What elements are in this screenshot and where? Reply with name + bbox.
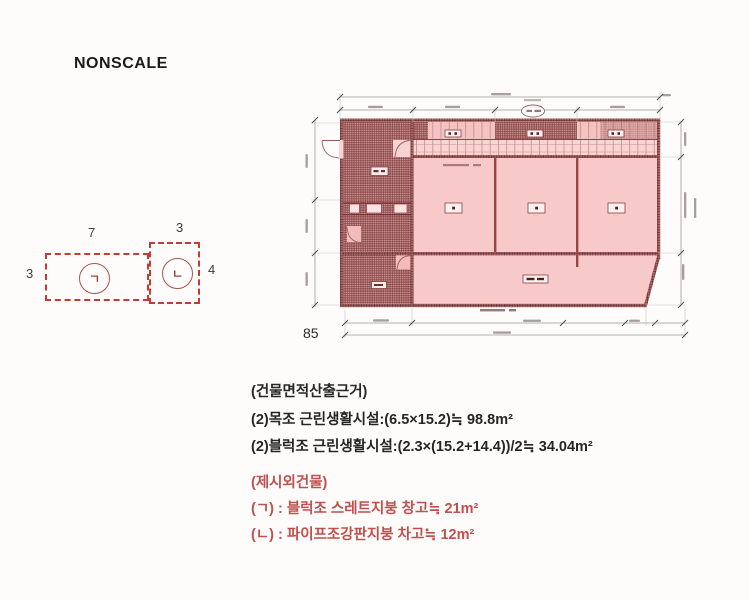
dim-label-width-n: 3 (176, 220, 183, 235)
stamp-oval (522, 99, 545, 117)
left-service-block (343, 122, 411, 304)
dim-label-width-g: 7 (88, 225, 95, 240)
floor-plan-drawing (293, 86, 749, 348)
annex-buildings-sketch: 7 3 3 4 ㄱ ㄴ (24, 220, 234, 320)
annex-mark-n: ㄴ (172, 265, 183, 282)
area-calc-title: (건물면적산출근거) (251, 379, 593, 407)
dim-label-height-g: 3 (26, 266, 33, 281)
area-calc-block: (건물면적산출근거) (2)목조 근린생활시설:(6.5×15.2)≒ 98.8… (251, 379, 593, 462)
nonscale-label: NONSCALE (74, 55, 168, 73)
extra-buildings-block: (제시외건물) (ㄱ) : 블럭조 스레트지붕 창고≒ 21m² (ㄴ) : 파… (251, 470, 478, 548)
area-calc-line-block: (2)블럭조 근린생활시설:(2.3×(15.2+14.4))/2≒ 34.04… (251, 434, 593, 462)
extra-buildings-title: (제시외건물) (251, 470, 478, 496)
annex-mark-n-circle: ㄴ (162, 258, 193, 289)
plan-page-number: 85 (303, 325, 319, 341)
annex-mark-g: ㄱ (89, 270, 100, 287)
document-page: NONSCALE 7 3 3 4 ㄱ ㄴ (0, 0, 749, 600)
extra-line-g: (ㄱ) : 블럭조 스레트지붕 창고≒ 21m² (251, 496, 478, 522)
annex-mark-g-circle: ㄱ (79, 263, 110, 294)
area-calc-line-wood: (2)목조 근린생활시설:(6.5×15.2)≒ 98.8m² (251, 407, 593, 435)
extra-line-n: (ㄴ) : 파이프조강판지붕 차고≒ 12m² (251, 522, 478, 548)
dim-label-height-n: 4 (208, 262, 215, 277)
